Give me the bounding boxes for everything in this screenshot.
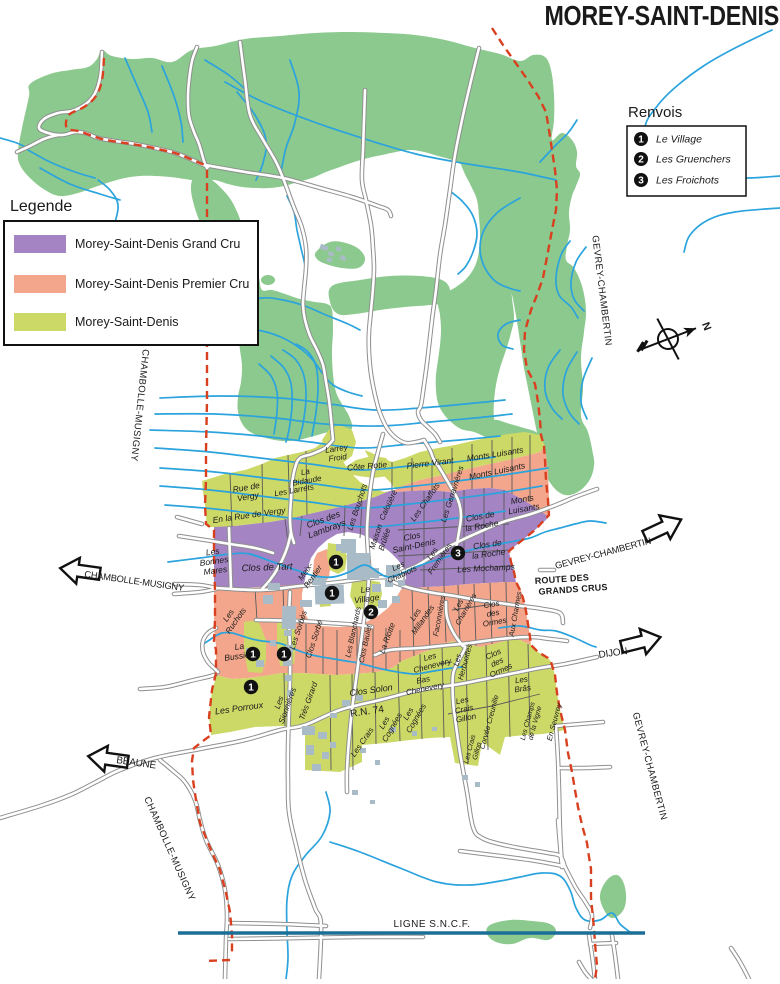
svg-text:Morey-Saint-Denis Premier Cru: Morey-Saint-Denis Premier Cru xyxy=(75,277,249,291)
svg-text:1: 1 xyxy=(281,649,287,660)
svg-text:Les Froichots: Les Froichots xyxy=(656,175,720,187)
svg-text:Morey-Saint-Denis Grand Cru: Morey-Saint-Denis Grand Cru xyxy=(75,237,240,251)
svg-text:MOREY-SAINT-DENIS: MOREY-SAINT-DENIS xyxy=(544,1,779,31)
svg-text:Legende: Legende xyxy=(10,198,72,215)
svg-text:3: 3 xyxy=(638,175,644,186)
svg-text:Le Village: Le Village xyxy=(656,134,702,146)
svg-text:1: 1 xyxy=(248,682,254,693)
svg-text:1: 1 xyxy=(329,588,335,599)
svg-text:2: 2 xyxy=(638,154,644,165)
svg-text:2: 2 xyxy=(368,607,374,618)
svg-text:1: 1 xyxy=(638,134,644,145)
svg-text:Clos de Tart: Clos de Tart xyxy=(241,561,293,574)
svg-text:3: 3 xyxy=(455,548,461,559)
svg-text:1: 1 xyxy=(333,557,339,568)
svg-text:LIGNE S.N.C.F.: LIGNE S.N.C.F. xyxy=(393,919,470,930)
svg-text:Morey-Saint-Denis: Morey-Saint-Denis xyxy=(75,315,179,329)
svg-text:Renvois: Renvois xyxy=(628,104,682,121)
svg-text:Les Gruenchers: Les Gruenchers xyxy=(656,154,731,166)
svg-text:1: 1 xyxy=(250,649,256,660)
